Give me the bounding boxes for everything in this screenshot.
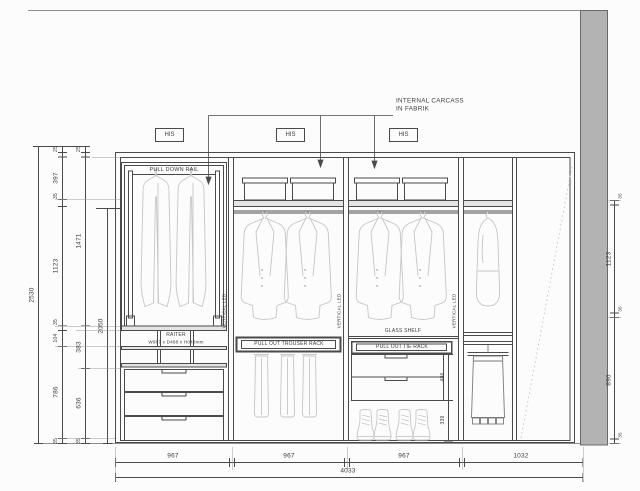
dim-bay2-width: 967 <box>283 453 294 460</box>
dim-right-tick-35a: 35 <box>618 193 623 199</box>
hanging-jacket-icon <box>241 212 288 319</box>
boot-icon <box>374 410 391 441</box>
hanging-jacket-icon <box>356 212 403 319</box>
dim-left-b-636: 636 <box>76 397 83 408</box>
dim-left-a-104: 104 <box>53 334 59 343</box>
wardrobe-elevation-drawing: HIS HIS HIS INTERNAL CARCASS IN FABRIK P… <box>0 0 640 491</box>
boot-icon <box>357 410 374 441</box>
trouser-rack-label: PULL OUT TROUSER RACK <box>254 341 323 347</box>
dim-bay3-shoes: 339 <box>440 416 446 425</box>
dim-left-a-25: 25 <box>53 146 59 152</box>
vertical-led-label-bay1: VERTICAL LED <box>222 294 227 329</box>
dim-bay3-drawers: 486 <box>440 373 446 382</box>
storage-box-icons <box>243 178 448 200</box>
dim-right-1123: 1123 <box>606 252 613 267</box>
dim-bay4-width: 1032 <box>513 453 528 460</box>
dim-left-b-1471: 1471 <box>76 233 83 248</box>
dim-overall-height: 2530 <box>29 287 36 302</box>
door-swing-dotted-line <box>521 166 572 438</box>
carcass-note-line1: INTERNAL CARCASS <box>396 98 464 105</box>
his-tag-bay3: HIS <box>389 128 418 142</box>
dim-bay3-width: 967 <box>398 453 409 460</box>
dim-left-a-35b: 35 <box>53 319 59 325</box>
dim-left-a-397: 397 <box>53 172 60 183</box>
carcass-leader-lines <box>206 116 393 185</box>
his-tag-bay2: HIS <box>276 128 305 142</box>
carcass-outline <box>116 153 575 443</box>
tie-rack-label: PULL OUT TIE RACK <box>376 344 428 350</box>
hanging-coat-icon <box>141 169 171 307</box>
raiter-label: RAITER <box>166 332 186 338</box>
hanging-trousers-icon <box>302 355 317 418</box>
hanging-trousers-icon <box>280 355 295 418</box>
dim-left-a-1123: 1123 <box>53 259 60 274</box>
laundry-hamper-icon <box>472 345 505 424</box>
wall-section <box>581 11 608 446</box>
top-shelves <box>234 201 513 214</box>
dim-right-tick-35b: 35 <box>618 306 623 312</box>
dim-overall-width: 4033 <box>340 468 355 475</box>
dim-left-a-786: 786 <box>53 386 60 397</box>
dim-right-890: 890 <box>606 374 613 385</box>
pull-down-rail-unit <box>122 163 227 330</box>
vertical-led-label-bay2: VERTICAL LED <box>337 294 342 329</box>
dim-right-tick-35c: 35 <box>618 432 623 438</box>
boot-icon <box>396 410 413 441</box>
carcass-note-line2: IN FABRIK <box>396 106 429 113</box>
hanging-coat-icon <box>176 169 206 307</box>
dim-rail-height: 2050 <box>98 318 105 333</box>
dim-left-a-35a: 35 <box>53 193 59 199</box>
pull-down-rail-label: PULL DOWN RAIL <box>149 167 198 173</box>
elevation-linework <box>0 0 640 491</box>
hanging-jacket-icon <box>399 212 446 319</box>
room-lines <box>28 11 580 444</box>
dim-left-a-35c: 35 <box>53 438 59 444</box>
dim-left-b-25: 25 <box>76 146 82 152</box>
vertical-led-label-bay3: VERTICAL LED <box>452 294 457 329</box>
hanging-jacket-icon <box>284 212 331 319</box>
his-tag-bay1: HIS <box>155 128 184 142</box>
garment-icons <box>141 169 500 440</box>
garment-bag-icon <box>476 213 499 306</box>
hanging-trousers-icon <box>254 355 269 418</box>
dim-bay1-width: 967 <box>167 453 178 460</box>
dim-left-b-383: 383 <box>76 341 83 352</box>
raiter-size-label: W967 x D488 x H048mm <box>148 340 203 345</box>
boot-icon <box>413 410 430 441</box>
dim-left-b-35: 35 <box>76 438 82 444</box>
glass-shelf-label: GLASS SHELF <box>385 328 421 334</box>
